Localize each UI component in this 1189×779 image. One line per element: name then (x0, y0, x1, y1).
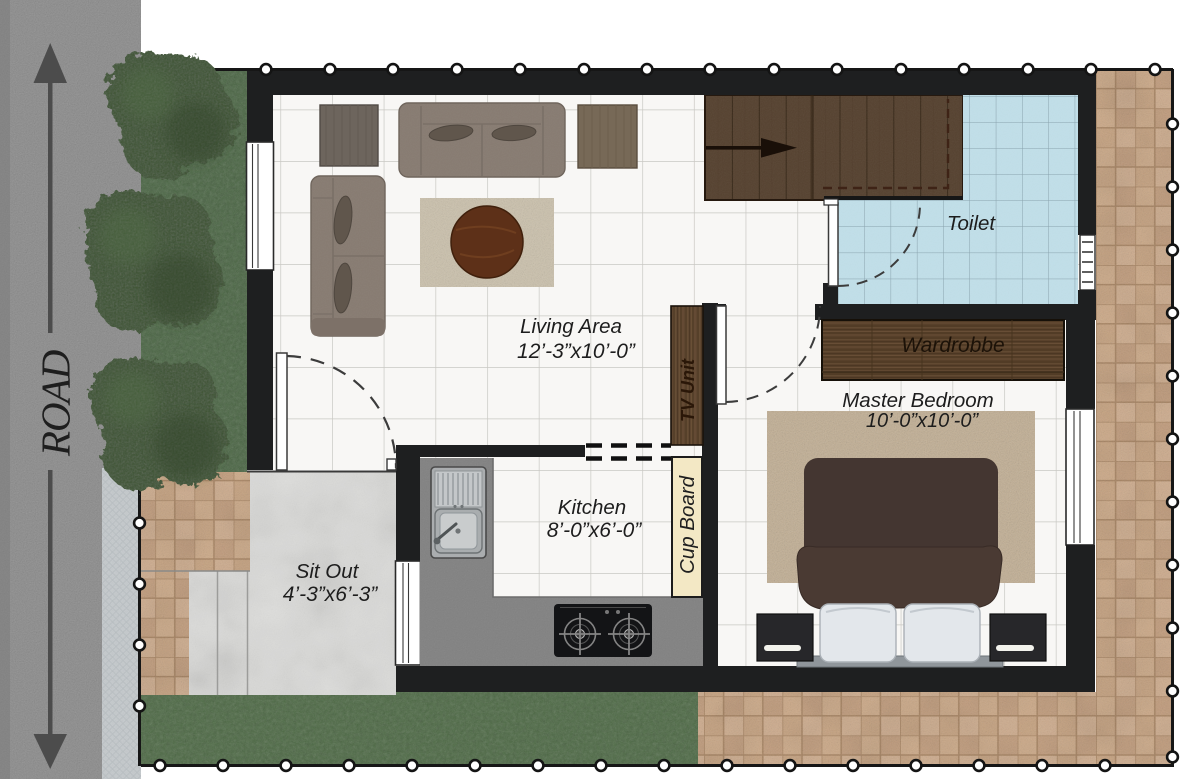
svg-text:ROAD: ROAD (33, 350, 79, 457)
svg-text:10’-0”x10’-0”: 10’-0”x10’-0” (866, 410, 980, 432)
svg-text:12’-3”x10’-0”: 12’-3”x10’-0” (517, 340, 636, 363)
svg-text:Sit Out: Sit Out (296, 560, 360, 583)
svg-text:8’-0”x6’-0”: 8’-0”x6’-0” (547, 519, 643, 542)
svg-text:Wardrobbe: Wardrobbe (901, 334, 1005, 357)
svg-text:Master Bedroom: Master Bedroom (842, 389, 994, 412)
svg-text:Kitchen: Kitchen (558, 496, 626, 519)
svg-text:Toilet: Toilet (947, 212, 997, 235)
svg-text:Living Area: Living Area (520, 315, 622, 338)
svg-text:Cup Board: Cup Board (676, 475, 699, 574)
svg-text:TV Unit: TV Unit (678, 358, 698, 422)
svg-text:4’-3”x6’-3”: 4’-3”x6’-3” (283, 583, 379, 606)
